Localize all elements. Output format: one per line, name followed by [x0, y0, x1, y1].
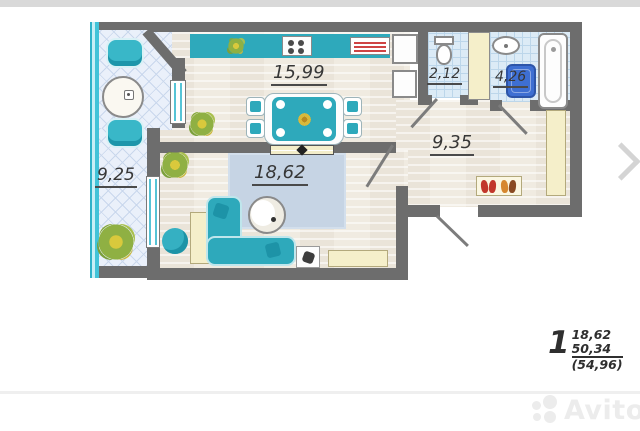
- balcony-chair-top: [106, 38, 144, 68]
- wall-top: [150, 22, 582, 32]
- floorplan-image: 15,99 2,12 4,26 9,35 18,62 9,25 1 18,62 …: [0, 0, 640, 431]
- avito-wordmark: Avito: [564, 395, 640, 426]
- toilet-bowl-icon: [436, 44, 452, 65]
- vent-shaft: [468, 32, 490, 100]
- next-image-arrow-icon[interactable]: [602, 142, 640, 180]
- balcony-chair-bottom: [106, 118, 144, 148]
- fridge: [392, 34, 418, 64]
- dining-table: [264, 93, 344, 145]
- kitchen-sink-icon: [350, 37, 390, 55]
- summary-total-area: (54,96): [572, 356, 623, 372]
- dining-chair: [246, 97, 265, 116]
- tv-stand: [328, 250, 388, 267]
- rooms-count: 1: [548, 328, 570, 358]
- stove-icon: [282, 36, 312, 56]
- avito-logo-icon: [531, 394, 559, 426]
- counter-flower-icon: [228, 38, 244, 54]
- bathroom-sink-icon: [492, 36, 520, 55]
- wall-balcony-top: [90, 22, 152, 30]
- wall-hall-living: [396, 186, 408, 280]
- balcony-plant-icon: [98, 224, 134, 260]
- hall-closet: [546, 110, 566, 196]
- cup-icon: [124, 90, 134, 100]
- wall-hall-bottom-right: [478, 205, 582, 217]
- living-area-label: 18,62: [252, 162, 308, 186]
- wall-living-bottom: [147, 268, 408, 280]
- coffee-table: [248, 196, 286, 234]
- kitchen-cabinet: [392, 70, 417, 98]
- kitchen-plant-icon: [190, 112, 214, 136]
- living-plant-icon: [162, 152, 188, 178]
- bathtub-icon: [538, 33, 568, 109]
- wall-right: [570, 22, 582, 217]
- side-table: [296, 246, 320, 268]
- balcony-area-label: 9,25: [95, 165, 137, 188]
- balcony-table: [102, 76, 144, 118]
- dining-chair: [343, 97, 362, 116]
- hallway-area-label: 9,35: [430, 132, 474, 156]
- bathroom-area-label: 4,26: [493, 69, 528, 88]
- top-gray-strip: [0, 0, 640, 7]
- balcony-door: [170, 80, 186, 124]
- area-summary: 1 18,62 50,34 (54,96): [548, 328, 623, 372]
- summary-living-area: 18,62: [572, 328, 623, 342]
- dining-chair: [343, 119, 362, 138]
- avito-watermark: Avito: [531, 394, 640, 426]
- table-flower-icon: [298, 113, 311, 126]
- kitchen-area-label: 15,99: [271, 62, 327, 86]
- living-room-window: [146, 176, 160, 248]
- shoe-rack: [476, 176, 522, 196]
- sofa-corner: [206, 236, 296, 266]
- tv-console: [270, 145, 334, 155]
- toilet-area-label: 2,12: [427, 66, 462, 85]
- summary-apartment-area: 50,34: [572, 342, 623, 356]
- bean-bag: [162, 228, 188, 254]
- dining-chair: [246, 119, 265, 138]
- entrance-door-swing: [436, 215, 469, 247]
